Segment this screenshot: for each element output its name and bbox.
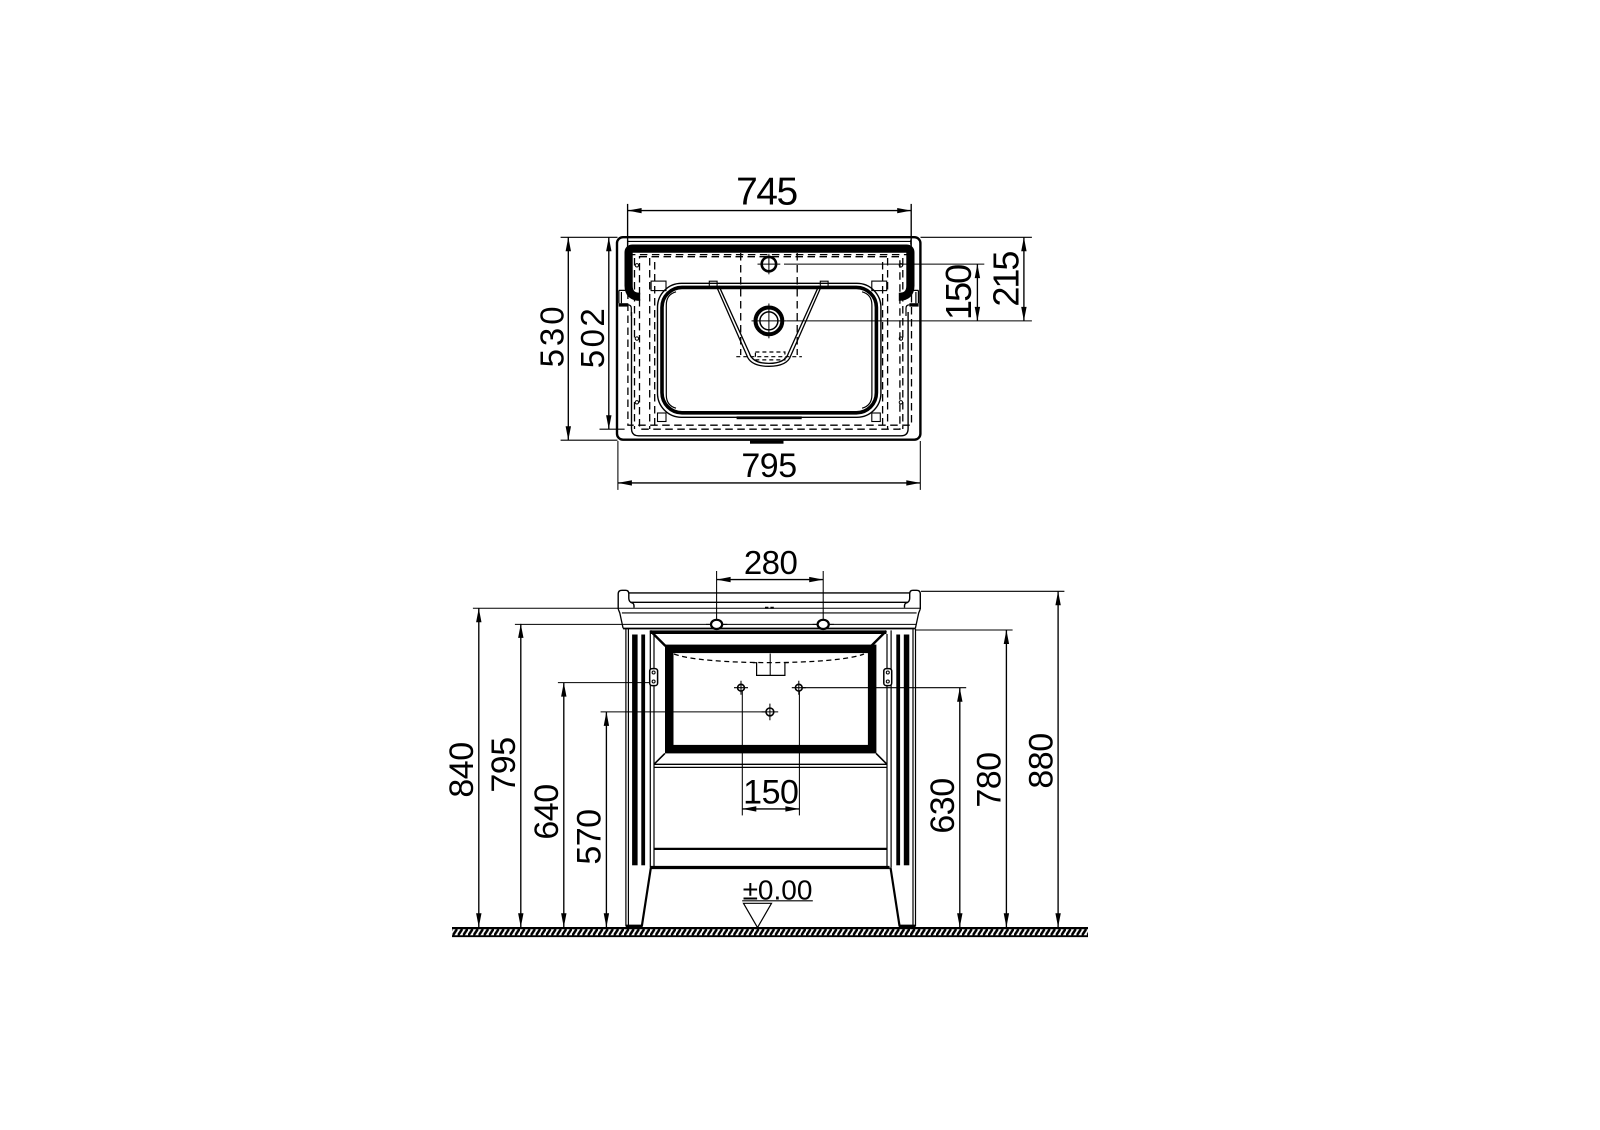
svg-text:570: 570 (571, 809, 609, 864)
svg-text:150: 150 (743, 773, 798, 811)
svg-text:280: 280 (744, 544, 798, 581)
svg-text:530: 530 (534, 303, 571, 367)
svg-text:880: 880 (1022, 733, 1060, 788)
svg-text:745: 745 (736, 171, 797, 214)
svg-text:640: 640 (528, 784, 566, 839)
svg-text:840: 840 (443, 742, 481, 797)
svg-text:780: 780 (971, 752, 1009, 807)
svg-text:630: 630 (924, 778, 962, 833)
svg-text:150: 150 (938, 265, 979, 320)
svg-text:502: 502 (574, 306, 611, 369)
svg-text:795: 795 (485, 737, 523, 792)
svg-text:215: 215 (986, 252, 1027, 307)
svg-text:795: 795 (741, 447, 796, 485)
